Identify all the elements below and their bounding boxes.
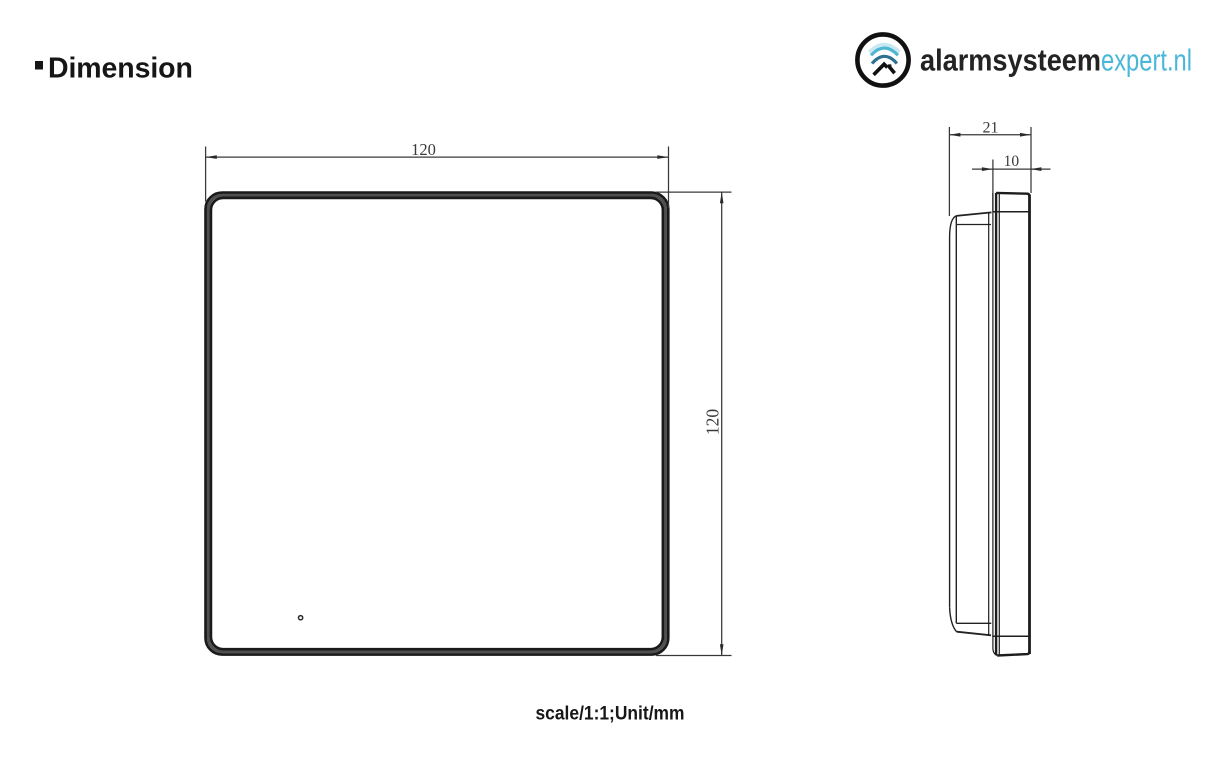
- svg-text:120: 120: [703, 409, 723, 436]
- svg-text:Dimension: Dimension: [48, 53, 193, 85]
- svg-text:120: 120: [411, 140, 436, 159]
- svg-text:alarmsysteemexpert.nl: alarmsysteemexpert.nl: [920, 43, 1192, 78]
- svg-text:scale/1:1;Unit/mm: scale/1:1;Unit/mm: [536, 704, 685, 725]
- svg-text:10: 10: [1004, 153, 1020, 170]
- svg-text:21: 21: [983, 119, 999, 136]
